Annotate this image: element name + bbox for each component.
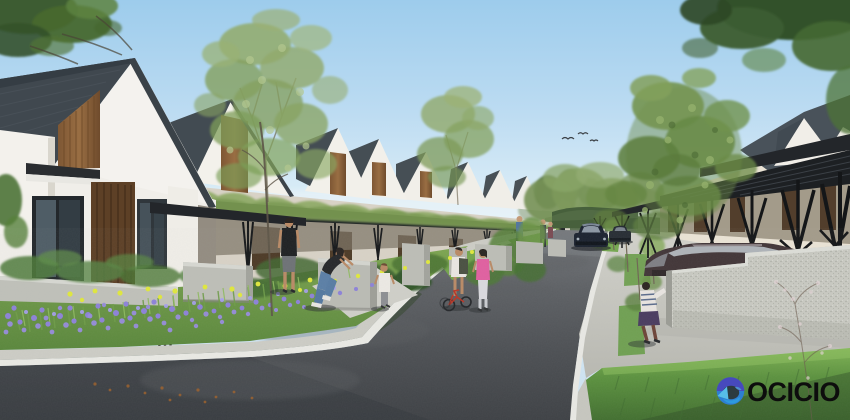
svg-text:OCICIO: OCICIO — [747, 377, 840, 407]
